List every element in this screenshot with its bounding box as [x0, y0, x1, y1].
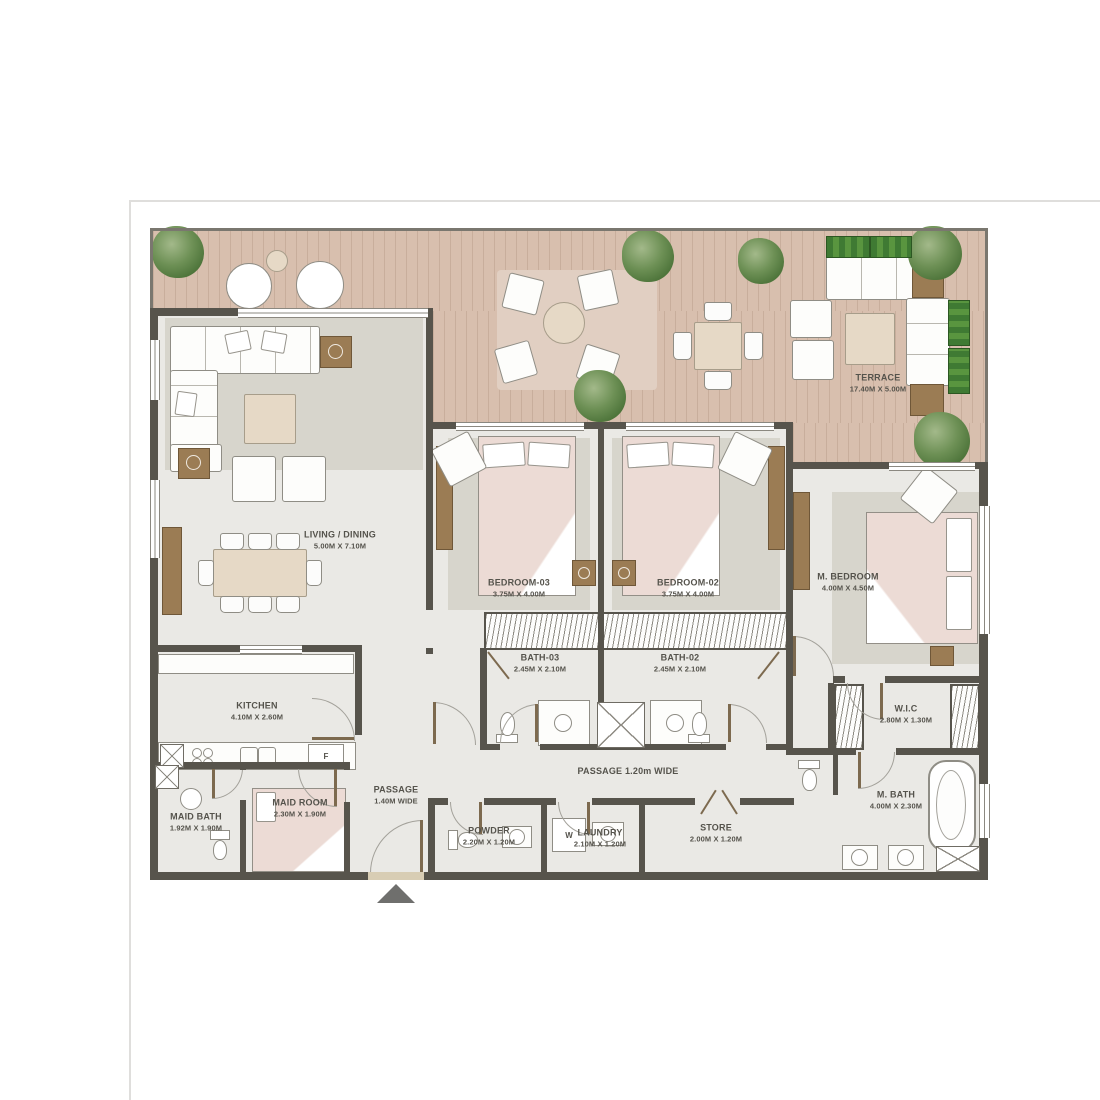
- wall: [150, 645, 240, 652]
- sliding-door-window: [238, 308, 428, 318]
- wall: [896, 748, 986, 755]
- tree: [738, 238, 784, 284]
- sink: [666, 714, 684, 732]
- wall: [766, 744, 786, 750]
- wall: [584, 422, 626, 429]
- master-terrace-window: [889, 462, 975, 471]
- wall: [150, 308, 238, 316]
- lounge-chair: [226, 263, 272, 309]
- kitchen-counter: [158, 654, 354, 674]
- master-side-window: [979, 506, 990, 634]
- pillow: [482, 442, 526, 469]
- wall: [428, 798, 435, 872]
- wall: [985, 228, 988, 468]
- bed-blanket: [290, 822, 345, 871]
- room-name: BATH-03: [514, 652, 566, 664]
- wall: [740, 798, 794, 805]
- room-dims: 17.40M X 5.00M: [850, 384, 906, 394]
- mbath-door: [858, 752, 861, 788]
- shower: [936, 846, 980, 872]
- label-laundry: LAUNDRY 2.10M X 1.20M: [574, 827, 626, 848]
- wall: [833, 676, 845, 683]
- dining-chair: [248, 596, 272, 613]
- wall: [355, 645, 362, 735]
- sink: [897, 849, 914, 866]
- room-dims: 1.92M X 1.90M: [170, 823, 222, 833]
- room-name: STORE: [690, 822, 742, 834]
- sink: [851, 849, 868, 866]
- room-dims: 4.10M X 2.60M: [231, 712, 283, 722]
- tree: [914, 412, 970, 468]
- wall: [150, 872, 368, 880]
- wall: [424, 872, 988, 880]
- mbath-window: [979, 784, 990, 838]
- outdoor-sofa: [826, 256, 916, 300]
- bath2-door: [728, 704, 731, 742]
- dining-chair: [248, 533, 272, 550]
- toilet: [802, 769, 817, 791]
- side-table: [266, 250, 288, 272]
- bedroom3-terrace-window: [456, 422, 584, 431]
- room-name: KITCHEN: [231, 700, 283, 712]
- nightstand: [930, 646, 954, 666]
- label-kitchen: KITCHEN 4.10M X 2.60M: [231, 700, 283, 721]
- pillow: [174, 391, 197, 418]
- wall: [541, 798, 547, 872]
- room-dims: 3.75M X 4.00M: [657, 589, 719, 599]
- dining-chair: [198, 560, 214, 586]
- room-name: BATH-02: [654, 652, 706, 664]
- wardrobe-row: [484, 612, 788, 650]
- label-wic: W.I.C 2.80M X 1.30M: [880, 703, 932, 724]
- maidroom-door: [334, 768, 337, 806]
- planter-box: [948, 300, 970, 346]
- pillow: [946, 518, 972, 572]
- label-maid-room: MAID ROOM 2.30M X 1.90M: [272, 797, 327, 818]
- room-name: LIVING / DINING: [304, 529, 376, 541]
- sink: [554, 714, 572, 732]
- dining-table: [213, 549, 307, 597]
- room-dims: 2.80M X 1.30M: [880, 715, 932, 725]
- planter-box: [826, 236, 870, 258]
- pillow: [527, 442, 571, 469]
- fridge-label: F: [324, 752, 329, 761]
- master-door: [793, 636, 796, 676]
- planter-box: [870, 236, 912, 258]
- maidbath-door: [212, 768, 215, 798]
- label-store: STORE 2.00M X 1.20M: [690, 822, 742, 843]
- entrance-arrow-icon: [377, 884, 415, 903]
- wall: [639, 798, 645, 872]
- label-m-bedroom: M. BEDROOM 4.00M X 4.50M: [817, 571, 879, 592]
- chair: [744, 332, 763, 360]
- toilet: [692, 712, 707, 736]
- room-name: W.I.C: [880, 703, 932, 715]
- room-name: LAUNDRY: [574, 827, 626, 839]
- pillow: [946, 576, 972, 630]
- planter-box: [948, 348, 970, 394]
- room-dims: 3.75M X 4.00M: [488, 589, 550, 599]
- pillow: [626, 442, 670, 469]
- dining-chair: [306, 560, 322, 586]
- room-name: MAID BATH: [170, 811, 222, 823]
- entrance-door: [420, 820, 423, 872]
- hob-burner: [192, 748, 202, 758]
- tree: [908, 226, 962, 280]
- wall: [480, 648, 487, 748]
- outdoor-chair: [792, 340, 834, 380]
- label-bedroom-02: BEDROOM-02 3.75M X 4.00M: [657, 577, 719, 598]
- coffee-table: [845, 313, 895, 365]
- entrance-threshold: [368, 872, 424, 880]
- label-maid-bath: MAID BATH 1.92M X 1.90M: [170, 811, 222, 832]
- room-dims: 4.00M X 4.50M: [817, 583, 879, 593]
- wall: [789, 462, 889, 469]
- wic-closet: [950, 684, 980, 750]
- room-dims: 4.00M X 2.30M: [870, 801, 922, 811]
- room-name: PASSAGE 1.20m WIDE: [578, 766, 679, 778]
- service-shaft: [597, 702, 645, 748]
- wall: [426, 428, 433, 610]
- label-powder: POWDER 2.20M X 1.20M: [463, 825, 515, 846]
- wall: [786, 748, 856, 755]
- wall: [150, 228, 988, 231]
- table-lamp: [328, 344, 343, 359]
- wall: [885, 676, 986, 683]
- bath3-door: [535, 704, 538, 742]
- duct: [155, 765, 179, 789]
- sink: [180, 788, 202, 810]
- chair: [704, 371, 732, 390]
- wall: [426, 648, 433, 654]
- outdoor-chair: [790, 300, 832, 338]
- label-m-bath: M. BATH 4.00M X 2.30M: [870, 789, 922, 810]
- bedroom3-door: [433, 702, 436, 744]
- toilet: [448, 830, 458, 850]
- outdoor-dining-table: [694, 322, 742, 370]
- tree: [152, 226, 204, 278]
- floorplan-page: F W TERRA: [0, 0, 1100, 1100]
- room-name: POWDER: [463, 825, 515, 837]
- page-edge-top: [129, 200, 1100, 202]
- wall: [302, 645, 360, 652]
- wall: [480, 744, 500, 750]
- label-passage-bedrooms: PASSAGE 1.20m WIDE: [578, 766, 679, 778]
- room-dims: 2.45M X 2.10M: [514, 664, 566, 674]
- hob-burner: [203, 748, 213, 758]
- wardrobe: [768, 446, 785, 550]
- lounge-chair: [577, 269, 620, 312]
- tree: [574, 370, 626, 422]
- room-dims: 2.00M X 1.20M: [690, 834, 742, 844]
- bathtub-basin: [936, 770, 966, 840]
- outdoor-sofa: [906, 298, 950, 386]
- wall: [828, 683, 834, 748]
- page-edge-left: [129, 200, 131, 1100]
- wall: [240, 762, 246, 770]
- room-dims: 2.10M X 1.20M: [574, 839, 626, 849]
- wall: [786, 428, 793, 750]
- room-name: PASSAGE: [374, 784, 419, 796]
- living-side-window: [150, 340, 160, 400]
- wall: [786, 676, 793, 683]
- chair: [704, 302, 732, 321]
- armchair: [282, 456, 326, 502]
- coffee-table: [244, 394, 296, 444]
- label-passage-main: PASSAGE 1.40M WIDE: [374, 784, 419, 805]
- room-dims: 2.30M X 1.90M: [272, 809, 327, 819]
- room-name: M. BEDROOM: [817, 571, 879, 583]
- room-name: BEDROOM-02: [657, 577, 719, 589]
- toilet: [798, 760, 820, 769]
- label-living-dining: LIVING / DINING 5.00M X 7.10M: [304, 529, 376, 550]
- label-bath-03: BATH-03 2.45M X 2.10M: [514, 652, 566, 673]
- room-dims: 2.20M X 1.20M: [463, 837, 515, 847]
- dining-chair: [276, 596, 300, 613]
- pillow: [671, 442, 715, 469]
- living-side-window: [150, 480, 160, 558]
- room-name: BEDROOM-03: [488, 577, 550, 589]
- label-bath-02: BATH-02 2.45M X 2.10M: [654, 652, 706, 673]
- room-name: M. BATH: [870, 789, 922, 801]
- label-terrace: TERRACE 17.40M X 5.00M: [850, 372, 906, 393]
- armchair: [232, 456, 276, 502]
- kitchen-door: [312, 737, 354, 740]
- table-lamp: [618, 567, 630, 579]
- room-name: MAID ROOM: [272, 797, 327, 809]
- dining-chair: [220, 533, 244, 550]
- wall: [426, 308, 433, 428]
- room-dims: 2.45M X 2.10M: [654, 664, 706, 674]
- round-table: [543, 302, 585, 344]
- lounge-chair: [296, 261, 344, 309]
- wall: [598, 428, 604, 712]
- wall: [344, 802, 350, 872]
- dining-chair: [220, 596, 244, 613]
- wall: [344, 762, 350, 770]
- wall: [833, 755, 838, 795]
- wall: [240, 800, 246, 872]
- room-dims: 1.40M WIDE: [374, 796, 419, 806]
- bedroom2-terrace-window: [626, 422, 774, 431]
- console: [162, 527, 182, 615]
- tree: [622, 230, 674, 282]
- washer-label: W: [565, 831, 573, 840]
- wardrobe: [793, 492, 810, 590]
- dining-chair: [276, 533, 300, 550]
- kitchen-passthrough: [240, 645, 302, 654]
- table-lamp: [578, 567, 590, 579]
- label-bedroom-03: BEDROOM-03 3.75M X 4.00M: [488, 577, 550, 598]
- room-dims: 5.00M X 7.10M: [304, 541, 376, 551]
- room-name: TERRACE: [850, 372, 906, 384]
- table-lamp: [186, 455, 201, 470]
- wall: [150, 228, 153, 314]
- pillow: [260, 330, 287, 354]
- chair: [673, 332, 692, 360]
- toilet: [213, 840, 227, 860]
